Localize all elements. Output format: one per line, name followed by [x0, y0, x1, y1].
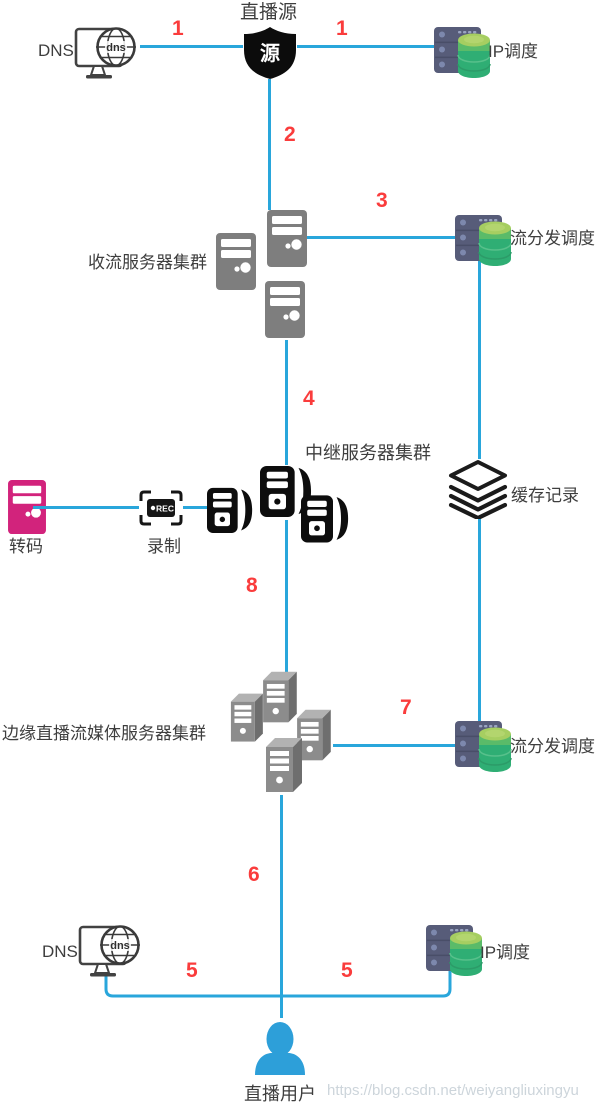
ip-scheduling-bottom-label: IP调度 — [480, 943, 530, 963]
rec-badge-text: REC — [156, 504, 174, 514]
cache-label: 缓存记录 — [511, 486, 579, 506]
step-number-7: 7 — [400, 697, 412, 718]
transcode-label: 转码 — [9, 537, 43, 557]
step-number-5-right: 5 — [341, 960, 353, 981]
step-number-3: 3 — [376, 190, 388, 211]
step-number-4: 4 — [303, 388, 315, 409]
edge-cluster-label: 边缘直播流媒体服务器集群 — [2, 724, 206, 744]
relay-cluster-label: 中继服务器集群 — [305, 443, 431, 464]
edge-record-to-relay — [183, 506, 208, 509]
dns-top-label: DNS — [38, 41, 74, 61]
step-number-6: 6 — [248, 864, 260, 885]
dns-bottom-label: DNS — [42, 942, 78, 962]
dns-top-icon — [74, 22, 140, 82]
step-number-1-right: 1 — [336, 18, 348, 39]
relay-server-icon-right — [301, 492, 349, 545]
edge-ingest-to-relay — [285, 340, 288, 465]
edge-server-icon-left — [227, 691, 265, 746]
step-number-5-left: 5 — [186, 960, 198, 981]
edge-ingest-to-dispatch — [307, 236, 456, 239]
ingest-server-icon-left — [216, 233, 256, 291]
ip-scheduling-top-label: IP调度 — [488, 42, 538, 62]
edge-source-to-ipsched — [297, 45, 434, 48]
ingest-server-icon-top — [267, 210, 307, 268]
edge-dns-to-source — [140, 45, 243, 48]
step-number-1-left: 1 — [172, 18, 184, 39]
stream-dispatch-top-label: 流分发调度 — [510, 229, 595, 249]
edge-source-to-ingest — [268, 79, 271, 210]
edge-transcode-to-record — [33, 506, 139, 509]
edge-user-dns-ipsched-connector — [95, 963, 465, 1005]
live-user-label: 直播用户 — [244, 1084, 316, 1105]
step-number-2: 2 — [284, 124, 296, 145]
edge-relay-to-edge-cluster — [285, 520, 288, 678]
step-number-8: 8 — [246, 575, 258, 596]
live-source-label: 直播源 — [240, 2, 297, 24]
edge-edgecluster-to-dispatch — [333, 744, 456, 747]
record-rec-icon: REC — [139, 490, 183, 526]
watermark-text: https://blog.csdn.net/weiyangliuxingyu — [327, 1082, 579, 1099]
architecture-diagram: 1 1 2 3 4 8 7 6 5 5 直播源 DNS IP调度 收流服务器集群… — [0, 0, 604, 1108]
record-label: 录制 — [147, 537, 181, 557]
ingest-server-icon-bottom — [265, 281, 305, 339]
dns-bottom-icon — [78, 920, 144, 980]
cache-stack-icon — [446, 459, 510, 519]
stream-dispatch-bottom-label: 流分发调度 — [510, 737, 595, 757]
live-source-shield-icon — [242, 26, 298, 80]
ingest-cluster-label: 收流服务器集群 — [88, 253, 207, 273]
relay-server-icon-left — [207, 485, 253, 535]
live-user-icon — [252, 1022, 308, 1078]
edge-server-icon-bottom — [262, 735, 304, 797]
